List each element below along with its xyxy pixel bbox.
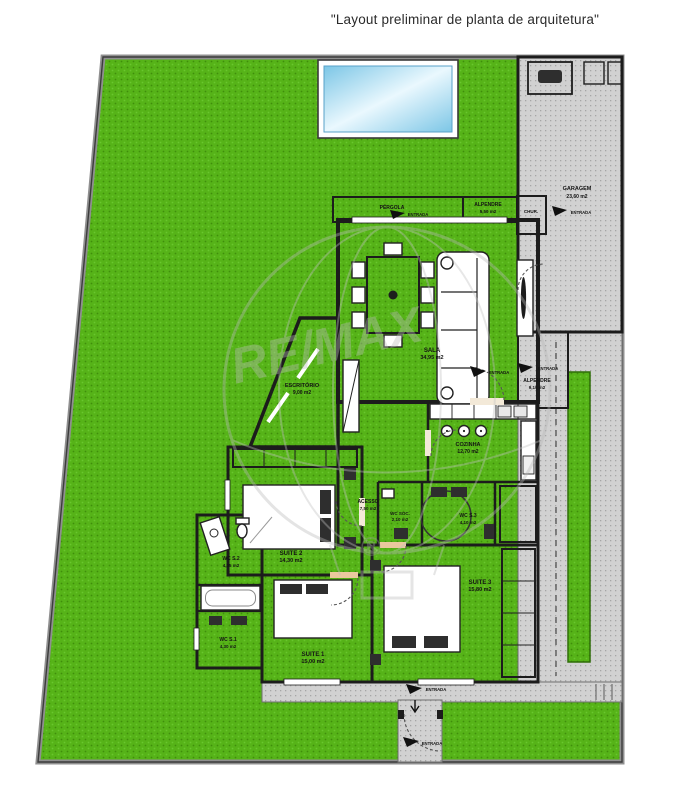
- entrance-label: ENTRADA: [571, 210, 591, 215]
- area-garagem: 23,60 m2: [566, 194, 587, 200]
- label-wc-soc: WC SOC.: [390, 511, 410, 516]
- entrance-label: ENTRADA: [422, 741, 442, 746]
- label-sala: SALA: [424, 348, 441, 354]
- equipment-item: [538, 70, 562, 83]
- area-wc-s1: 4,30 m2: [220, 644, 237, 649]
- area-suite2: 14,30 m2: [279, 558, 302, 564]
- label-wc-s3: WC S.3: [459, 513, 476, 519]
- watermark-registered-symbol: ®: [361, 532, 381, 562]
- sala-window: [352, 217, 507, 223]
- floor-plan-page: "Layout preliminar de planta de arquitet…: [0, 0, 675, 800]
- office-desk: [343, 360, 359, 432]
- label-escritorio: ESCRITÓRIO: [285, 381, 320, 389]
- suite1-window: [284, 679, 340, 685]
- suite2-window: [225, 480, 230, 510]
- entrance-label: ENTRADA: [426, 687, 446, 692]
- gate-post-2: [437, 710, 443, 719]
- label-garagem: GARAGEM: [563, 186, 592, 192]
- area-cozinha: 12,70 m2: [457, 449, 478, 455]
- label-alpendre-top: ALPENDRE: [474, 202, 502, 208]
- tv-unit: [517, 260, 533, 336]
- swimming-pool: [318, 60, 458, 138]
- wc-window: [194, 628, 199, 650]
- area-wc-soc: 2,10 m2: [392, 517, 409, 522]
- bathtub: [201, 586, 260, 610]
- area-sala: 34,95 m2: [420, 355, 443, 361]
- area-acesso: 7,50 m2: [360, 506, 377, 511]
- area-escritorio: 9,00 m2: [293, 390, 312, 396]
- suite1-bed: [274, 580, 352, 638]
- label-suite2: SUITE 2: [280, 551, 303, 557]
- area-alpendre-right: 9,10 m2: [529, 385, 546, 390]
- entrance-label: ENTRADA: [538, 366, 558, 371]
- area-wc-s2: 4,05 m2: [223, 563, 240, 568]
- label-alpendre-right: ALPENDRE: [523, 378, 551, 384]
- entrance-label: ENTRADA: [489, 370, 509, 375]
- label-churrasqueira: CHUR.: [524, 209, 538, 214]
- label-pergola: PÉRGOLA: [380, 203, 405, 211]
- area-wc-s3: 4,10 m2: [460, 520, 477, 525]
- label-suite3: SUITE 3: [469, 580, 492, 586]
- planter-strip: [568, 372, 590, 662]
- suite3-window: [418, 679, 474, 685]
- label-wc-s1: WC S.1: [219, 637, 236, 643]
- label-wc-s2: WC S.2: [222, 556, 239, 562]
- entrance-label: ENTRADA: [408, 212, 428, 217]
- area-suite3: 15,80 m2: [468, 587, 491, 593]
- label-cozinha: COZINHA: [455, 442, 480, 448]
- floor-plan-drawing: RE/MAX ® PÉRGOLA ALPENDRE 5,50 m2 CHUR. …: [0, 0, 675, 800]
- label-suite1: SUITE 1: [302, 652, 325, 658]
- gate-post: [398, 710, 404, 719]
- area-alpendre-top: 5,50 m2: [480, 209, 497, 214]
- area-suite1: 15,00 m2: [301, 659, 324, 665]
- label-acesso: ACESSO: [357, 499, 378, 505]
